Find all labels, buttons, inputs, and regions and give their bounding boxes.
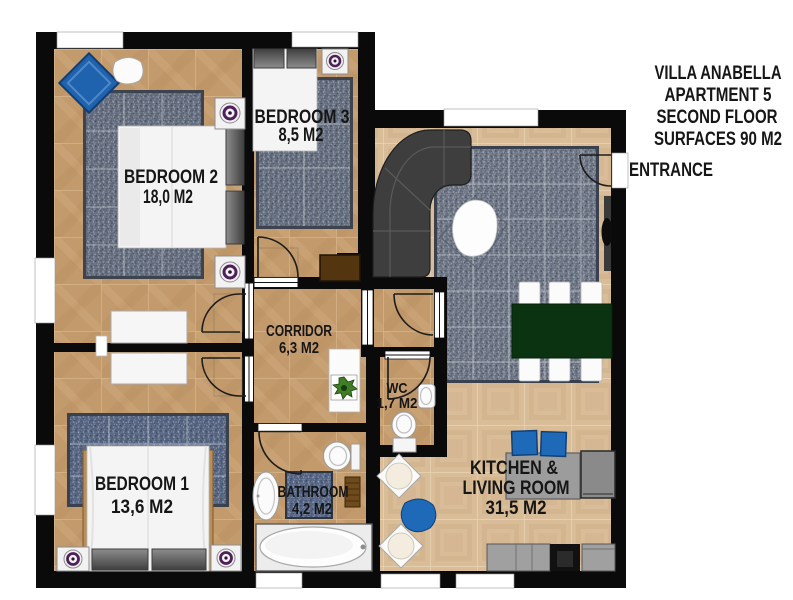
svg-text:18,0 M2: 18,0 M2: [143, 187, 193, 208]
svg-text:SECOND FLOOR: SECOND FLOOR: [657, 107, 778, 128]
svg-text:APARTMENT 5: APARTMENT 5: [665, 85, 772, 106]
svg-text:SURFACES 90 M2: SURFACES 90 M2: [654, 129, 782, 150]
svg-text:BEDROOM 2: BEDROOM 2: [124, 167, 218, 188]
svg-text:13,6 M2: 13,6 M2: [111, 497, 173, 518]
svg-text:LIVING ROOM: LIVING ROOM: [463, 478, 570, 499]
svg-text:4,2 M2: 4,2 M2: [292, 501, 332, 518]
svg-text:8,5 M2: 8,5 M2: [279, 125, 324, 146]
svg-text:BEDROOM 1: BEDROOM 1: [95, 474, 189, 495]
svg-text:ENTRANCE: ENTRANCE: [629, 160, 713, 181]
svg-text:BATHROOM: BATHROOM: [278, 484, 349, 501]
svg-text:6,3 M2: 6,3 M2: [279, 340, 319, 357]
svg-text:KITCHEN &: KITCHEN &: [470, 458, 558, 479]
svg-text:1,7 M2: 1,7 M2: [377, 395, 418, 412]
svg-text:CORRIDOR: CORRIDOR: [266, 323, 332, 340]
svg-text:VILLA ANABELLA: VILLA ANABELLA: [655, 63, 782, 84]
svg-text:31,5 M2: 31,5 M2: [486, 498, 547, 519]
